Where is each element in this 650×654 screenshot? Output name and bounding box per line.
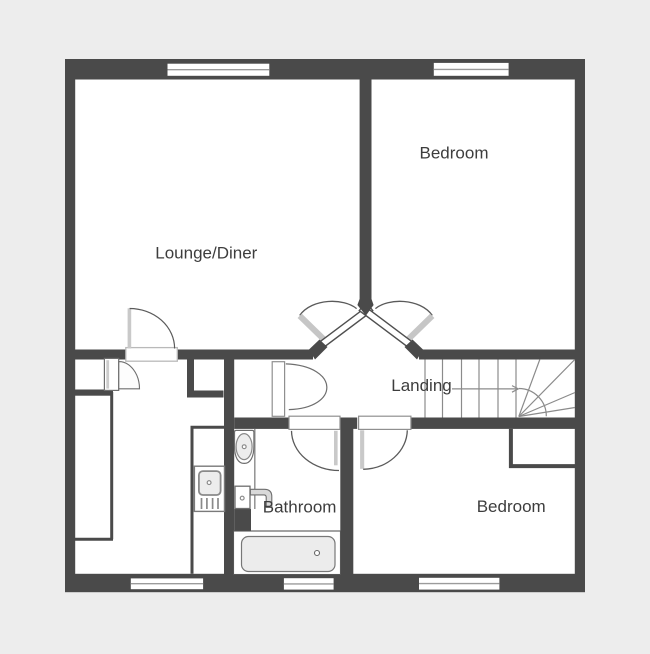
svg-text:Bedroom: Bedroom <box>420 144 489 163</box>
svg-text:Landing: Landing <box>391 376 452 395</box>
svg-text:Lounge/Diner: Lounge/Diner <box>155 244 257 263</box>
svg-text:Bathroom: Bathroom <box>263 497 337 516</box>
svg-text:Bedroom: Bedroom <box>477 497 546 516</box>
